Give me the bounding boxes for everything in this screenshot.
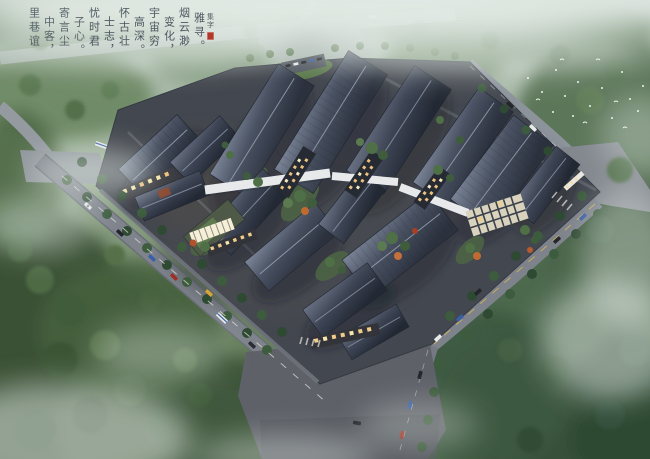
- rendering-canvas: 集字 雅寻。 烟云渺 变化， 宇宙穷 高深。 怀古壮 士志， 忧时君 子心。 寄…: [0, 0, 650, 459]
- fog-gradient: [0, 0, 650, 80]
- scene: [0, 0, 650, 459]
